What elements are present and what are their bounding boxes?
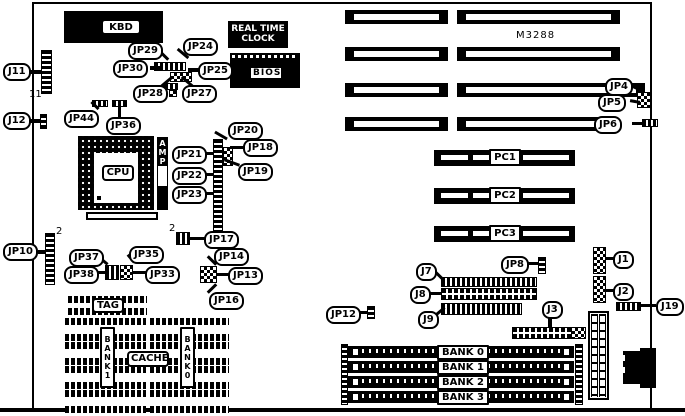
- callout-jp16: JP16: [209, 292, 244, 310]
- jp27-jumper-block: [169, 90, 177, 97]
- cpu-pin1-marker: [97, 196, 101, 200]
- kbd-label: KBD: [101, 19, 141, 35]
- callout-j11: J11: [3, 63, 31, 81]
- callout-jp24: JP24: [183, 38, 218, 56]
- callout-jp28: JP28: [133, 85, 168, 103]
- callout-j12: J12: [3, 112, 31, 130]
- board-model: M3288: [516, 30, 555, 41]
- jp17-pin-number: 2: [169, 223, 175, 234]
- cache-bank0-label: BANK0: [180, 327, 195, 388]
- callout-j7: J7: [416, 263, 437, 281]
- amp-bar-gap: [157, 165, 168, 187]
- callout-jp22: JP22: [172, 167, 207, 185]
- tag-label: TAG: [92, 298, 124, 313]
- jp6-jumper: [642, 119, 658, 127]
- bios-label: BIOS: [249, 66, 283, 80]
- board-edge-left: [32, 2, 34, 408]
- cpu-label: CPU: [102, 165, 134, 181]
- callout-j2: J2: [613, 283, 634, 301]
- isa-slot-1-left: [345, 10, 448, 24]
- isa-slot-4-left: [345, 117, 448, 131]
- motherboard-diagram: KBD REAL TIME CLOCK BIOS M3288 11 CPU AM…: [0, 0, 685, 416]
- din-notch: [621, 367, 625, 373]
- callout-jp44: JP44: [64, 110, 99, 128]
- amp-heatsink-bar: AMP: [157, 137, 168, 210]
- jp10-pin-number: 2: [56, 226, 62, 237]
- callout-jp14: JP14: [214, 248, 249, 266]
- callout-jp17: JP17: [204, 231, 239, 249]
- bank0-label: BANK 0: [437, 345, 489, 360]
- j7-header: [441, 277, 537, 287]
- callout-jp8: JP8: [501, 256, 529, 274]
- j11-connector: [41, 50, 52, 94]
- callout-jp23: JP23: [172, 186, 207, 204]
- jp8-jumper: [538, 257, 546, 274]
- bank1-label: BANK 1: [437, 360, 489, 375]
- cache-chip: [150, 390, 229, 413]
- j19-header: [616, 302, 641, 311]
- callout-jp19: JP19: [238, 163, 273, 181]
- j12-jumper: [40, 114, 47, 129]
- cpu-socket-lever: [86, 212, 158, 220]
- cache-label: CACHE: [127, 351, 169, 367]
- callout-j3: J3: [542, 301, 563, 319]
- isa-slot-1-right: [457, 10, 620, 24]
- keyboard-din-connector-body: [623, 351, 640, 384]
- bank2-label: BANK 2: [437, 375, 489, 390]
- callout-jp13: JP13: [228, 267, 263, 285]
- j9-header: [441, 303, 522, 315]
- amp-label: AMP: [158, 139, 167, 166]
- j3-header: [512, 327, 578, 339]
- simm-end-rail-right: [575, 344, 583, 405]
- callout-jp6: JP6: [594, 116, 622, 134]
- j8-header: [441, 288, 537, 300]
- callout-jp18: JP18: [243, 139, 278, 157]
- callout-jp35: JP35: [129, 246, 164, 264]
- callout-jp38: JP38: [64, 266, 99, 284]
- rtc-label-line2: CLOCK: [228, 34, 288, 44]
- jp12-jumper: [367, 306, 375, 319]
- callout-jp25: JP25: [198, 62, 233, 80]
- callout-j19: J19: [656, 298, 684, 316]
- isa-slot-2-right: [457, 47, 620, 61]
- fan-pin-block: [571, 327, 586, 339]
- bios-socket-dots: [232, 55, 298, 58]
- keyboard-din-connector: [640, 348, 656, 388]
- power-connector: [588, 311, 609, 400]
- callout-jp12: JP12: [326, 306, 361, 324]
- j1-header: [593, 247, 606, 274]
- real-time-clock-chip: REAL TIME CLOCK: [228, 21, 288, 48]
- callout-jp20: JP20: [228, 122, 263, 140]
- jp38-jumper-block: [105, 265, 119, 280]
- pc3-label: PC3: [489, 225, 521, 242]
- callout-j1: J1: [613, 251, 634, 269]
- callout-jp29: JP29: [128, 42, 163, 60]
- cache-chip: [65, 390, 146, 413]
- callout-jp30: JP30: [113, 60, 148, 78]
- callout-jp21: JP21: [172, 146, 207, 164]
- callout-jp27: JP27: [182, 85, 217, 103]
- callout-jp36: JP36: [106, 117, 141, 135]
- callout-jp10: JP10: [3, 243, 38, 261]
- rtc-label-line1: REAL TIME: [228, 24, 288, 34]
- pc1-label: PC1: [489, 149, 521, 166]
- cache-bank1-label: BANK1: [100, 327, 115, 388]
- callout-j9: J9: [418, 311, 439, 329]
- callout-jp37: JP37: [69, 249, 104, 267]
- jp13-jumper-block: [200, 266, 217, 283]
- callout-jp5: JP5: [598, 94, 626, 112]
- callout-jp33: JP33: [145, 266, 180, 284]
- pc2-label: PC2: [489, 187, 521, 204]
- isa-slot-2-left: [345, 47, 448, 61]
- jp20-jumper-strip: [213, 139, 223, 243]
- board-edge-top: [32, 2, 650, 4]
- isa-slot-3-left: [345, 83, 448, 97]
- simm-end-rail-left: [341, 344, 348, 405]
- din-notch: [621, 355, 625, 361]
- callout-j8: J8: [410, 286, 431, 304]
- j11-pin-number: 11: [29, 89, 42, 100]
- jp17-jumper: [176, 232, 190, 245]
- bank3-label: BANK 3: [437, 390, 489, 405]
- jp10-connector: [45, 233, 55, 285]
